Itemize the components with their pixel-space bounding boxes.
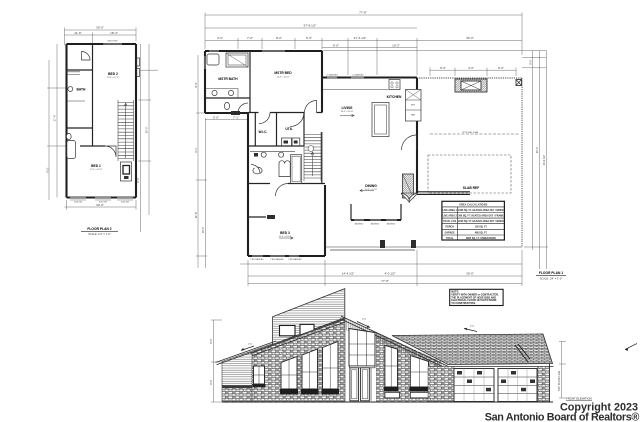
svg-text:40'-4 1/2": 40'-4 1/2" [542, 154, 546, 165]
svg-text:W.I.C.: W.I.C. [259, 130, 268, 134]
svg-text:FRONT ELEVATION: FRONT ELEVATION [566, 397, 592, 401]
svg-text:LIVING: LIVING [342, 106, 353, 110]
svg-text:120 SQ. FT.: 120 SQ. FT. [475, 227, 488, 229]
svg-text:8'-0": 8'-0" [276, 36, 282, 40]
svg-text:FLOOR PLAN 2: FLOOR PLAN 2 [87, 227, 111, 231]
svg-text:14'-0" x 16'-0": 14'-0" x 16'-0" [277, 77, 290, 79]
svg-text:2 BR BASEBD: 2 BR BASEBD [288, 258, 302, 261]
svg-text:BATH: BATH [77, 88, 87, 92]
svg-text:BASEBD: BASEBD [355, 222, 364, 225]
svg-text:6'-0": 6'-0" [333, 43, 339, 47]
svg-text:LIVE AREA 2: LIVE AREA 2 [443, 215, 458, 218]
svg-text:57'-8 1/2": 57'-8 1/2" [304, 24, 317, 28]
svg-text:2867 SQ. FT. UNDER ROOF: 2867 SQ. FT. UNDER ROOF [466, 238, 497, 240]
svg-text:30'-0": 30'-0" [466, 272, 474, 276]
svg-text:560 SQ. FT. HEATED AREA OUT /: 560 SQ. FT. HEATED AREA OUT / FRAME [458, 215, 504, 218]
svg-text:19'-0": 19'-0" [201, 227, 205, 234]
svg-text:480 SQ. FT.: 480 SQ. FT. [475, 231, 488, 234]
svg-text:3050 SH: 3050 SH [74, 202, 83, 204]
svg-text:18'-4": 18'-4" [110, 31, 118, 35]
svg-text:7'-1": 7'-1" [233, 115, 239, 119]
svg-text:30'-0": 30'-0" [535, 147, 539, 154]
svg-text:2220 SQ. FT. HEATED AREA OUT /: 2220 SQ. FT. HEATED AREA OUT / BRICK [458, 220, 504, 223]
svg-text:9'-1": 9'-1" [194, 147, 198, 152]
svg-text:OPTIONAL SLAB: OPTIONAL SLAB [462, 131, 479, 134]
svg-text:37'-4 1/2": 37'-4 1/2" [354, 36, 367, 40]
svg-text:17'-4": 17'-4" [53, 115, 57, 122]
svg-text:2x BASEBD: 2x BASEBD [326, 74, 338, 77]
svg-text:4'-0": 4'-0" [217, 36, 223, 40]
svg-text:MSTR BATH: MSTR BATH [218, 77, 238, 81]
svg-text:GARAGE: GARAGE [445, 231, 456, 234]
svg-text:12'-0" x 13'-6": 12'-0" x 13'-6" [279, 236, 292, 238]
svg-text:9'-6": 9'-6" [498, 66, 504, 70]
svg-text:LIVE AREA 1: LIVE AREA 1 [443, 209, 458, 212]
svg-text:BASEBD: BASEBD [371, 222, 380, 225]
svg-text:77'-8": 77'-8" [381, 279, 389, 283]
svg-text:SCALE: 1/4" = 1'-0": SCALE: 1/4" = 1'-0" [540, 276, 563, 280]
svg-text:1660 SQ. FT. HEATED AREA OUT /: 1660 SQ. FT. HEATED AREA OUT / BRICK [458, 209, 504, 212]
svg-text:8'-0": 8'-0" [209, 338, 213, 343]
svg-text:2 BR BASEBD: 2 BR BASEBD [270, 258, 284, 261]
svg-text:KITCHEN: KITCHEN [387, 95, 402, 99]
svg-text:5'-0": 5'-0" [213, 115, 219, 119]
svg-text:TO CONSTRUCTION.: TO CONSTRUCTION. [451, 302, 476, 305]
svg-text:9'-0": 9'-0" [440, 66, 446, 70]
svg-text:4'-0 1/2": 4'-0 1/2" [385, 272, 396, 276]
svg-text:BED 1: BED 1 [91, 164, 101, 168]
svg-text:DINING: DINING [365, 184, 377, 188]
svg-text:21'-8": 21'-8" [194, 212, 198, 219]
svg-text:11'-6": 11'-6" [74, 31, 81, 35]
svg-text:30'-0": 30'-0" [96, 25, 104, 29]
svg-text:14'-4 1/2": 14'-4 1/2" [342, 272, 355, 276]
svg-text:SCALE: 1/4" = 1'-0": SCALE: 1/4" = 1'-0" [88, 232, 111, 236]
svg-text:TOTAL LIVE: TOTAL LIVE [443, 220, 457, 223]
svg-text:MSTR BED: MSTR BED [274, 71, 292, 75]
svg-text:36'-0": 36'-0" [466, 36, 474, 40]
svg-text:9'-2": 9'-2" [46, 167, 50, 172]
svg-text:11'-6" x 17'-0": 11'-6" x 17'-0" [107, 77, 120, 79]
svg-text:PORCH: PORCH [445, 227, 454, 229]
svg-text:TOP PLATE LINE: TOP PLATE LINE [557, 371, 561, 392]
svg-text:8'-0": 8'-0" [209, 379, 213, 384]
svg-text:REF: REF [411, 105, 416, 107]
svg-text:TOTAL: TOTAL [446, 237, 454, 240]
svg-text:30'-0": 30'-0" [96, 203, 104, 207]
svg-text:17'-0" x 12'-6": 17'-0" x 12'-6" [90, 169, 103, 171]
svg-text:30'-0": 30'-0" [145, 127, 149, 134]
svg-text:SLAB REF: SLAB REF [463, 186, 480, 190]
svg-text:3050 SH: 3050 SH [121, 202, 130, 204]
svg-text:77'-8": 77'-8" [359, 11, 367, 15]
svg-text:BASEBD: BASEBD [387, 222, 396, 225]
svg-text:FLOOR PLAN 1: FLOOR PLAN 1 [539, 271, 563, 275]
svg-text:AREA CALCULATIONS: AREA CALCULATIONS [459, 203, 488, 207]
svg-text:18'-0" x 16'-8": 18'-0" x 16'-8" [341, 111, 354, 113]
svg-text:WIN TRIM: WIN TRIM [108, 41, 118, 43]
svg-text:2x BASEBD: 2x BASEBD [352, 74, 364, 77]
svg-text:BED 2: BED 2 [108, 72, 118, 76]
svg-text:8'-0": 8'-0" [528, 59, 532, 64]
svg-text:7'-6": 7'-6" [247, 36, 253, 40]
svg-text:BED 3: BED 3 [280, 231, 290, 235]
svg-text:UTIL: UTIL [285, 127, 292, 131]
svg-text:San Antonio Board of Realtors®: San Antonio Board of Realtors® [485, 412, 640, 422]
svg-text:2 BR BASEBD: 2 BR BASEBD [250, 258, 264, 261]
svg-text:PAN: PAN [411, 114, 416, 117]
svg-text:6'-6": 6'-6" [306, 36, 312, 40]
svg-text:8'-4": 8'-4" [194, 82, 198, 87]
svg-text:10'-2": 10'-2" [392, 43, 400, 47]
svg-text:4'-0": 4'-0" [468, 66, 474, 70]
